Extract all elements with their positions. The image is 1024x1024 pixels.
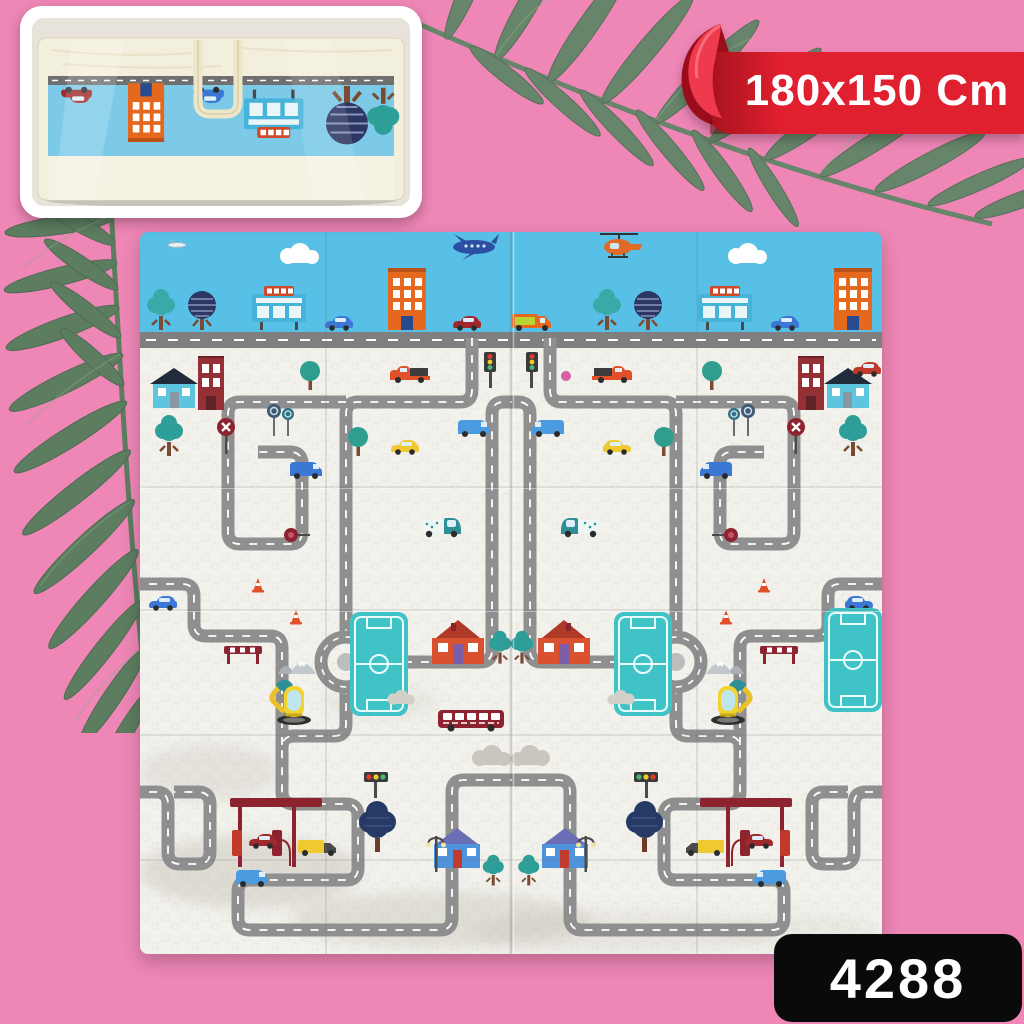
sku-badge: 4288 [774,934,1022,1022]
carry-bag-graphic [32,18,410,206]
soccer-field-icon [824,608,882,712]
packaged-product-photo [32,18,410,206]
pink-ball-icon [561,371,571,381]
size-label: 180x150 Cm [740,66,1014,116]
sku-number: 4288 [830,946,967,1011]
playmat-graphic [140,232,882,954]
packaged-product-thumbnail [20,6,422,218]
product-photo: 180x150 Cm 4288 [0,0,1024,1024]
playmat-photo [140,232,882,954]
